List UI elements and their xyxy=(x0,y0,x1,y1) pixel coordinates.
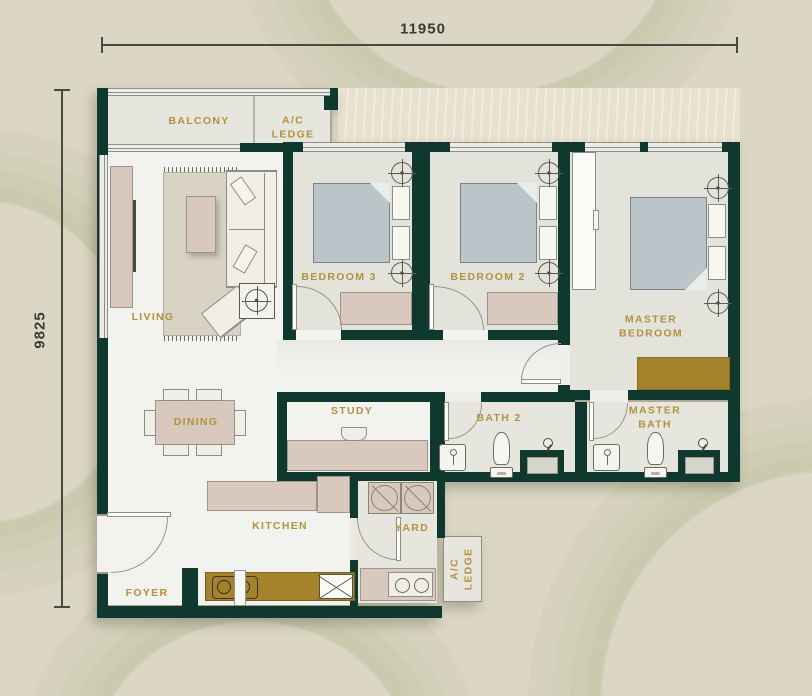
wall-segment xyxy=(728,142,740,482)
bed xyxy=(630,197,707,290)
bedside-table xyxy=(392,186,410,220)
wall-segment xyxy=(277,392,437,402)
dimension-label-height: 9825 xyxy=(32,311,49,348)
room-label-dining: DINING xyxy=(174,416,219,430)
balcony-divider xyxy=(253,96,255,145)
wall-segment xyxy=(575,402,587,482)
dining-chair xyxy=(163,444,189,456)
ceiling-fan-icon xyxy=(391,162,413,184)
door-opening xyxy=(296,330,341,340)
room-label-kitchen: KITCHEN xyxy=(252,520,308,534)
wall-segment xyxy=(341,330,412,340)
shower-pan xyxy=(685,457,714,474)
room-label-bedroom2: BEDROOM 2 xyxy=(450,271,525,285)
room-label-living: LIVING xyxy=(132,311,175,325)
bathroom-sink-icon xyxy=(439,444,466,471)
wall-segment xyxy=(283,330,296,340)
tv xyxy=(133,200,136,272)
toilet-button xyxy=(497,472,506,475)
dining-chair xyxy=(163,389,189,401)
wall-segment xyxy=(430,330,443,340)
ceiling-fan-icon xyxy=(707,292,729,314)
wall-segment xyxy=(283,142,303,152)
entrance-opening xyxy=(97,514,108,574)
toilet-bowl xyxy=(493,432,510,465)
wall-segment xyxy=(277,472,437,481)
wall-segment xyxy=(481,392,575,402)
kitchen-cabinet xyxy=(207,481,317,511)
room-label-bath2: BATH 2 xyxy=(477,412,522,426)
bed xyxy=(460,183,537,263)
shower-pan xyxy=(527,457,558,474)
ceiling-fan-icon xyxy=(245,289,268,312)
bedside-table xyxy=(708,246,726,280)
room-label-ac-ledge-bottom: A/C LEDGE xyxy=(448,548,475,591)
room-label-balcony: BALCONY xyxy=(168,115,229,129)
room-label-ac-ledge-top: A/C LEDGE xyxy=(272,114,315,141)
wall-segment xyxy=(350,481,358,518)
ceiling-fan-icon xyxy=(538,162,560,184)
wardrobe xyxy=(340,292,412,325)
dining-chair xyxy=(144,410,156,436)
room-label-master-bath: MASTER BATH xyxy=(629,404,681,431)
dimension-line-vertical xyxy=(61,90,63,608)
column xyxy=(234,570,246,606)
bathroom-sink-icon xyxy=(593,444,620,471)
sliding-door xyxy=(108,144,240,152)
room-label-master-bedroom: MASTER BEDROOM xyxy=(619,313,683,340)
dimension-tick xyxy=(736,37,738,53)
toilet-bowl xyxy=(647,432,664,465)
wall-segment xyxy=(628,390,728,400)
ceiling-fan-icon xyxy=(707,177,729,199)
desk xyxy=(287,440,428,471)
room-label-yard: YARD xyxy=(395,522,429,536)
door-opening xyxy=(443,330,488,340)
floor-plan-page: BALCONY A/C LEDGE LIVING BEDROOM 3 BEDRO… xyxy=(0,0,812,696)
room-label-bedroom3: BEDROOM 3 xyxy=(301,271,376,285)
wall-segment xyxy=(437,480,445,538)
wall-segment xyxy=(412,152,430,340)
kitchen-sink-icon xyxy=(319,574,353,599)
dining-chair xyxy=(196,389,222,401)
wardrobe xyxy=(637,357,730,390)
wall-segment xyxy=(182,568,198,606)
toilet-button xyxy=(651,472,660,475)
wall-segment xyxy=(558,152,570,345)
window xyxy=(99,155,108,338)
window xyxy=(585,142,640,152)
fridge xyxy=(317,476,350,513)
dimension-tick xyxy=(54,606,70,608)
dimension-line-horizontal xyxy=(102,44,737,46)
dimension-tick xyxy=(101,37,103,53)
wall-segment xyxy=(640,142,648,152)
wall-segment xyxy=(488,330,558,340)
floor-plan: BALCONY A/C LEDGE LIVING BEDROOM 3 BEDRO… xyxy=(0,0,812,696)
wall-segment xyxy=(97,606,442,618)
dining-chair xyxy=(196,444,222,456)
toilet-icon xyxy=(490,432,514,478)
ceiling-fan-icon xyxy=(391,262,413,284)
bedside-table xyxy=(708,204,726,238)
bed xyxy=(313,183,390,263)
window xyxy=(648,142,722,152)
wall-segment xyxy=(552,142,585,152)
balcony-railing xyxy=(108,88,330,96)
bedside-table xyxy=(392,226,410,260)
dimension-tick xyxy=(54,89,70,91)
door-opening xyxy=(445,392,481,402)
yard-sink-unit xyxy=(388,572,433,597)
window xyxy=(303,142,405,152)
dining-chair xyxy=(234,410,246,436)
wall-segment xyxy=(277,402,287,480)
door-opening xyxy=(590,390,628,402)
bedside-table xyxy=(539,186,557,220)
room-label-study: STUDY xyxy=(331,405,373,419)
coffee-table xyxy=(186,196,216,253)
corridor xyxy=(277,340,558,392)
window xyxy=(450,142,552,152)
ceiling-fan-icon xyxy=(538,262,560,284)
wardrobe xyxy=(487,292,558,325)
desk-chair xyxy=(341,427,367,441)
wall-segment xyxy=(405,142,450,152)
closet-handle xyxy=(593,210,599,230)
bedside-table xyxy=(539,226,557,260)
washer-icon xyxy=(401,482,434,514)
washer-icon xyxy=(368,482,401,514)
room-label-foyer: FOYER xyxy=(126,587,169,601)
toilet-icon xyxy=(644,432,668,478)
dimension-label-width: 11950 xyxy=(400,21,446,38)
tv-console xyxy=(110,166,133,308)
